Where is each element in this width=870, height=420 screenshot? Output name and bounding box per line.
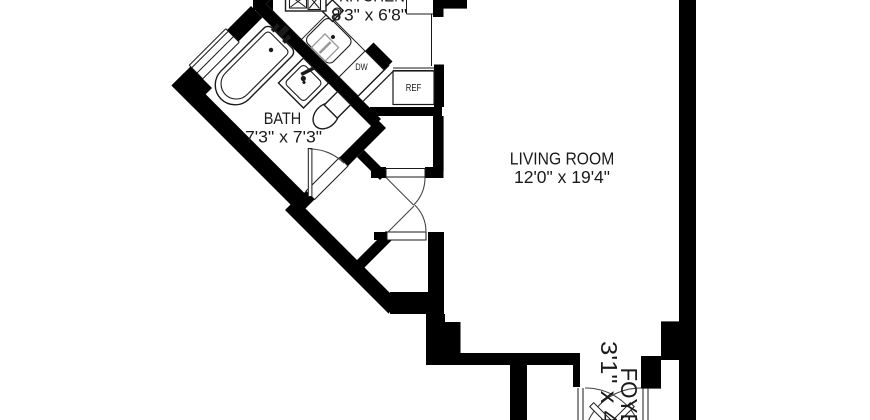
svg-text:DW: DW <box>355 62 368 73</box>
svg-text:REF: REF <box>406 82 422 94</box>
svg-text:8'3" x 6'8": 8'3" x 6'8" <box>331 7 407 25</box>
svg-text:KITCHEN: KITCHEN <box>339 0 405 6</box>
svg-text:BATH: BATH <box>264 110 302 128</box>
svg-text:7'3" x 7'3": 7'3" x 7'3" <box>245 129 322 147</box>
svg-text:LIVING ROOM: LIVING ROOM <box>510 149 615 169</box>
svg-text:12'0" x 19'4": 12'0" x 19'4" <box>514 167 610 187</box>
svg-text:3'1" x 4'2": 3'1" x 4'2" <box>596 341 622 420</box>
